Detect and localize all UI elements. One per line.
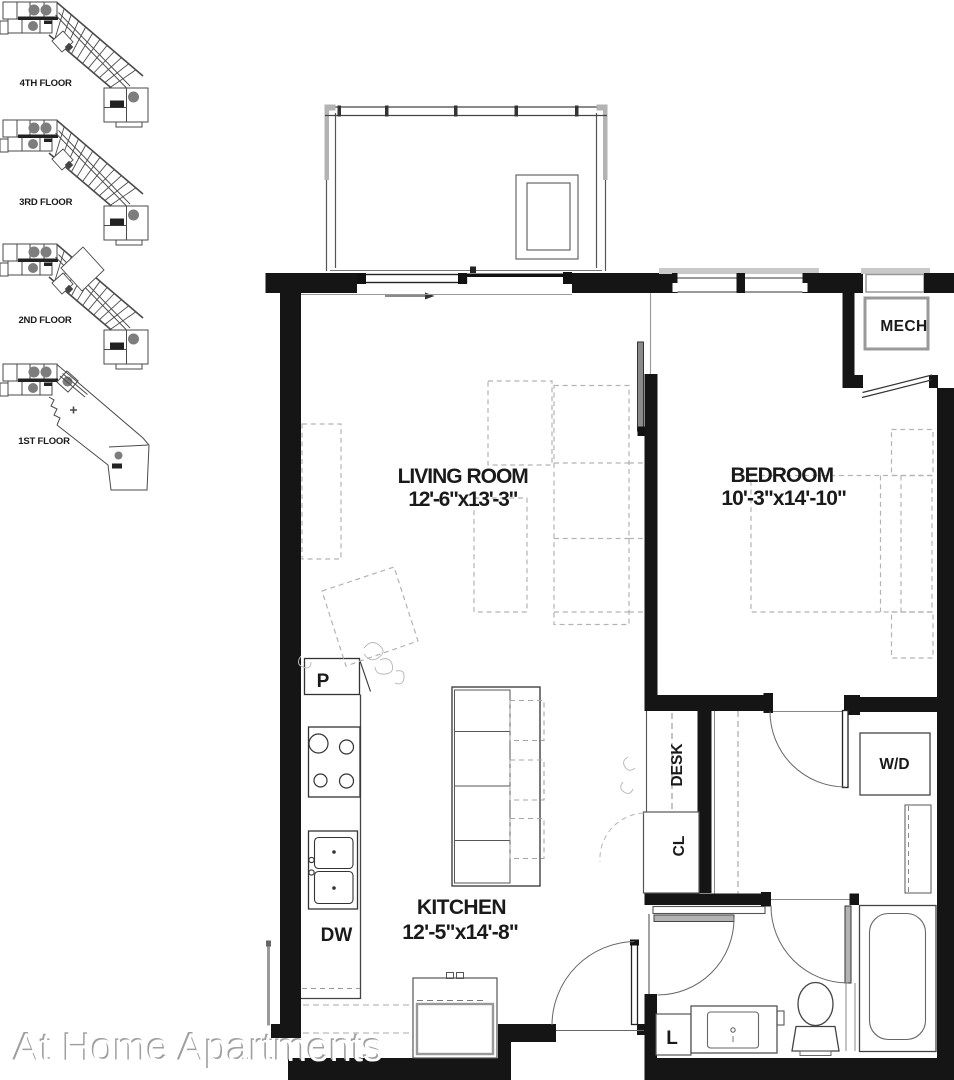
svg-text:12'-5"x14'-8": 12'-5"x14'-8" xyxy=(402,921,518,944)
svg-text:10'-3"x14'-10": 10'-3"x14'-10" xyxy=(721,487,846,510)
svg-text:2ND FLOOR: 2ND FLOOR xyxy=(18,315,71,326)
svg-text:P: P xyxy=(317,671,330,692)
svg-text:12'-6"x13'-3": 12'-6"x13'-3" xyxy=(408,488,517,511)
svg-text:DESK: DESK xyxy=(669,743,686,787)
svg-text:W/D: W/D xyxy=(879,756,909,773)
svg-text:L: L xyxy=(666,1028,678,1049)
svg-text:1ST FLOOR: 1ST FLOOR xyxy=(18,436,70,447)
svg-text:At Home Apartments: At Home Apartments xyxy=(14,1026,383,1070)
svg-text:4TH FLOOR: 4TH FLOOR xyxy=(20,78,72,89)
svg-text:CL: CL xyxy=(671,836,688,857)
svg-text:KITCHEN: KITCHEN xyxy=(417,896,506,919)
svg-text:BEDROOM: BEDROOM xyxy=(730,464,833,487)
svg-text:DW: DW xyxy=(321,925,353,946)
svg-text:3RD FLOOR: 3RD FLOOR xyxy=(19,197,72,208)
svg-text:MECH: MECH xyxy=(880,318,927,335)
svg-text:LIVING ROOM: LIVING ROOM xyxy=(398,465,529,488)
